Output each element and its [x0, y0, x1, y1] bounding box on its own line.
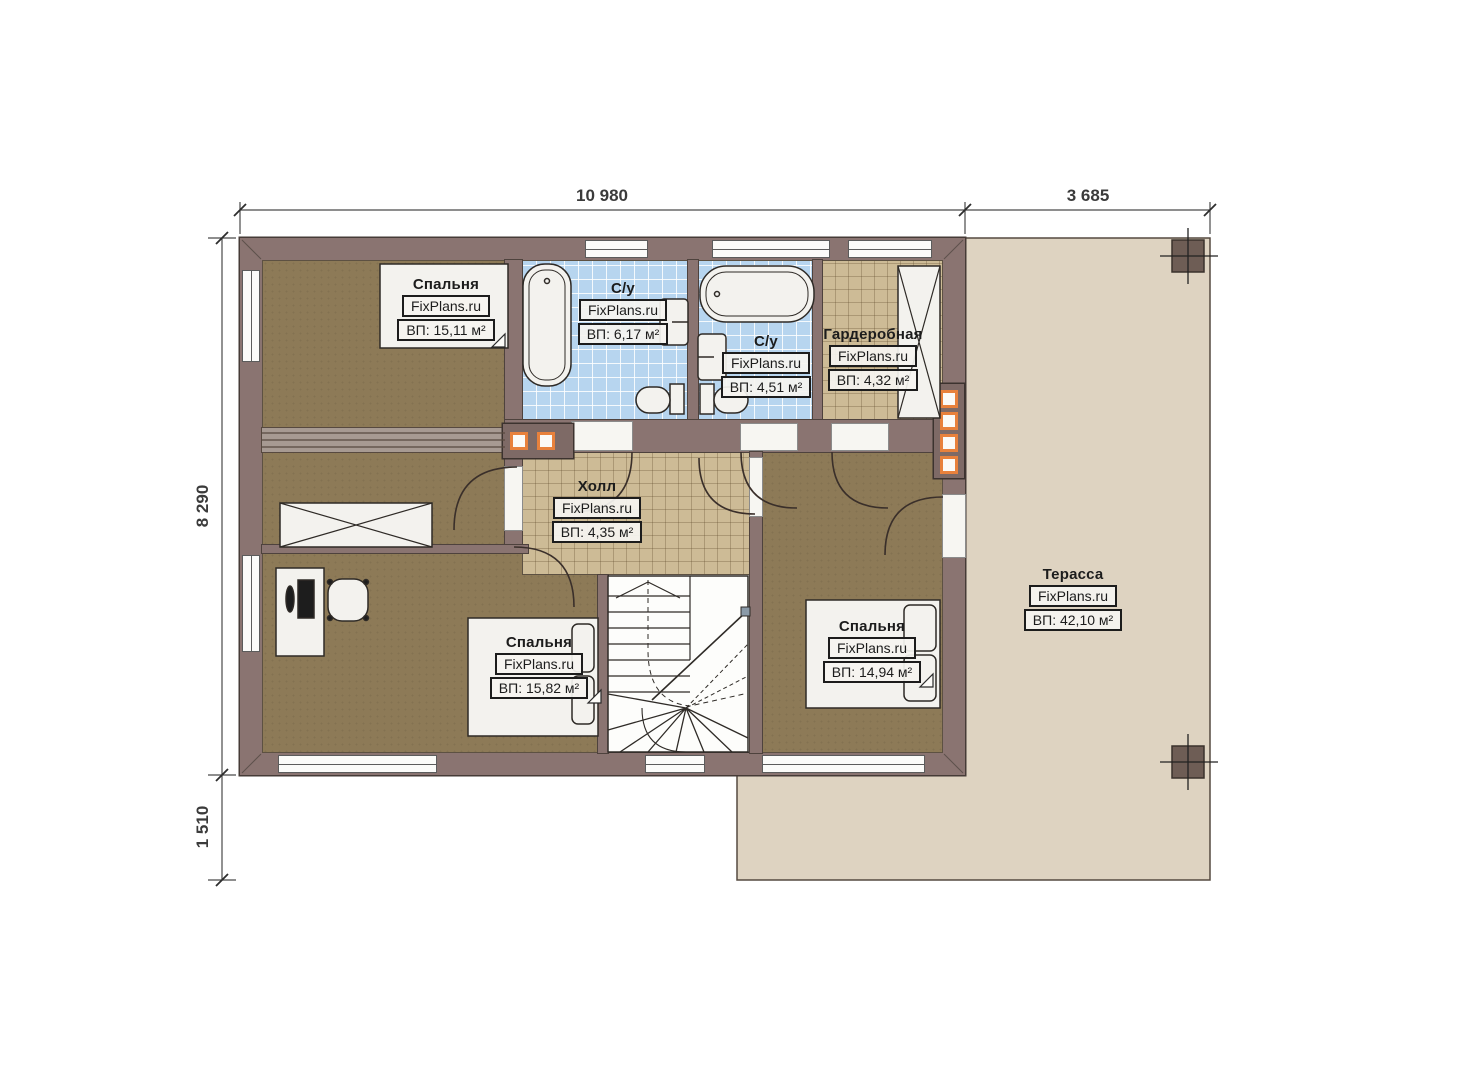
dimension-left-lower: 1 510: [193, 806, 213, 849]
room-brand: FixPlans.ru: [402, 295, 490, 317]
office-chair: [328, 579, 369, 621]
dimension-top-right: 3 685: [1067, 186, 1110, 206]
wardrobe-cabinet-bedroom-1: [280, 503, 432, 547]
staircase: [608, 576, 750, 752]
bathtub-horizontal: [700, 266, 814, 322]
room-name: Терасса: [1043, 566, 1104, 583]
door-arc-bathroom-2: [741, 452, 797, 508]
room-name: Холл: [578, 478, 616, 495]
room-name: Гардеробная: [823, 326, 922, 343]
room-area: ВП: 4,51 м²: [721, 376, 812, 398]
desk: [276, 568, 324, 656]
room-area: ВП: 15,82 м²: [490, 677, 588, 699]
room-area: ВП: 42,10 м²: [1024, 609, 1122, 631]
room-brand: FixPlans.ru: [829, 345, 917, 367]
door-arc-wardrobe: [832, 452, 888, 508]
room-name: Спальня: [413, 276, 479, 293]
room-name: Спальня: [506, 634, 572, 651]
room-label-terrace: Терасса FixPlans.ru ВП: 42,10 м²: [1020, 566, 1126, 631]
floor-plan-canvas: Спальня FixPlans.ru ВП: 15,11 м² С/у Fix…: [0, 0, 1473, 1080]
room-area: ВП: 14,94 м²: [823, 661, 921, 683]
room-brand: FixPlans.ru: [1029, 585, 1117, 607]
room-area: ВП: 4,35 м²: [552, 521, 643, 543]
room-brand: FixPlans.ru: [553, 497, 641, 519]
door-arc-bedroom-1: [454, 467, 517, 530]
toilet-bathroom-1: [636, 384, 684, 414]
room-brand: FixPlans.ru: [722, 352, 810, 374]
room-brand: FixPlans.ru: [495, 653, 583, 675]
room-label-wardrobe: Гардеробная FixPlans.ru ВП: 4,32 м²: [820, 326, 926, 391]
door-arc-bedroom-2: [514, 547, 574, 607]
room-label-hall: Холл FixPlans.ru ВП: 4,35 м²: [550, 478, 644, 543]
room-label-bathroom-1: С/у FixPlans.ru ВП: 6,17 м²: [576, 280, 670, 345]
door-arc-terrace: [885, 497, 943, 555]
detail-layer: [0, 0, 1473, 1080]
room-brand: FixPlans.ru: [579, 299, 667, 321]
room-name: С/у: [754, 333, 778, 350]
room-area: ВП: 6,17 м²: [578, 323, 669, 345]
room-area: ВП: 4,32 м²: [828, 369, 919, 391]
door-arc-bedroom-3: [699, 458, 755, 514]
room-label-bathroom-2: С/у FixPlans.ru ВП: 4,51 м²: [716, 333, 816, 398]
bathtub-vertical: [523, 264, 571, 386]
sliding-door-lines: [262, 433, 505, 447]
room-name: С/у: [611, 280, 635, 297]
room-name: Спальня: [839, 618, 905, 635]
room-label-bedroom-3: Спальня FixPlans.ru ВП: 14,94 м²: [808, 618, 936, 683]
dimension-top-main: 10 980: [576, 186, 628, 206]
room-area: ВП: 15,11 м²: [397, 319, 494, 341]
dimension-left-main: 8 290: [193, 485, 213, 528]
room-label-bedroom-2: Спальня FixPlans.ru ВП: 15,82 м²: [474, 634, 604, 699]
room-brand: FixPlans.ru: [828, 637, 916, 659]
room-label-bedroom-1: Спальня FixPlans.ru ВП: 15,11 м²: [383, 276, 509, 341]
